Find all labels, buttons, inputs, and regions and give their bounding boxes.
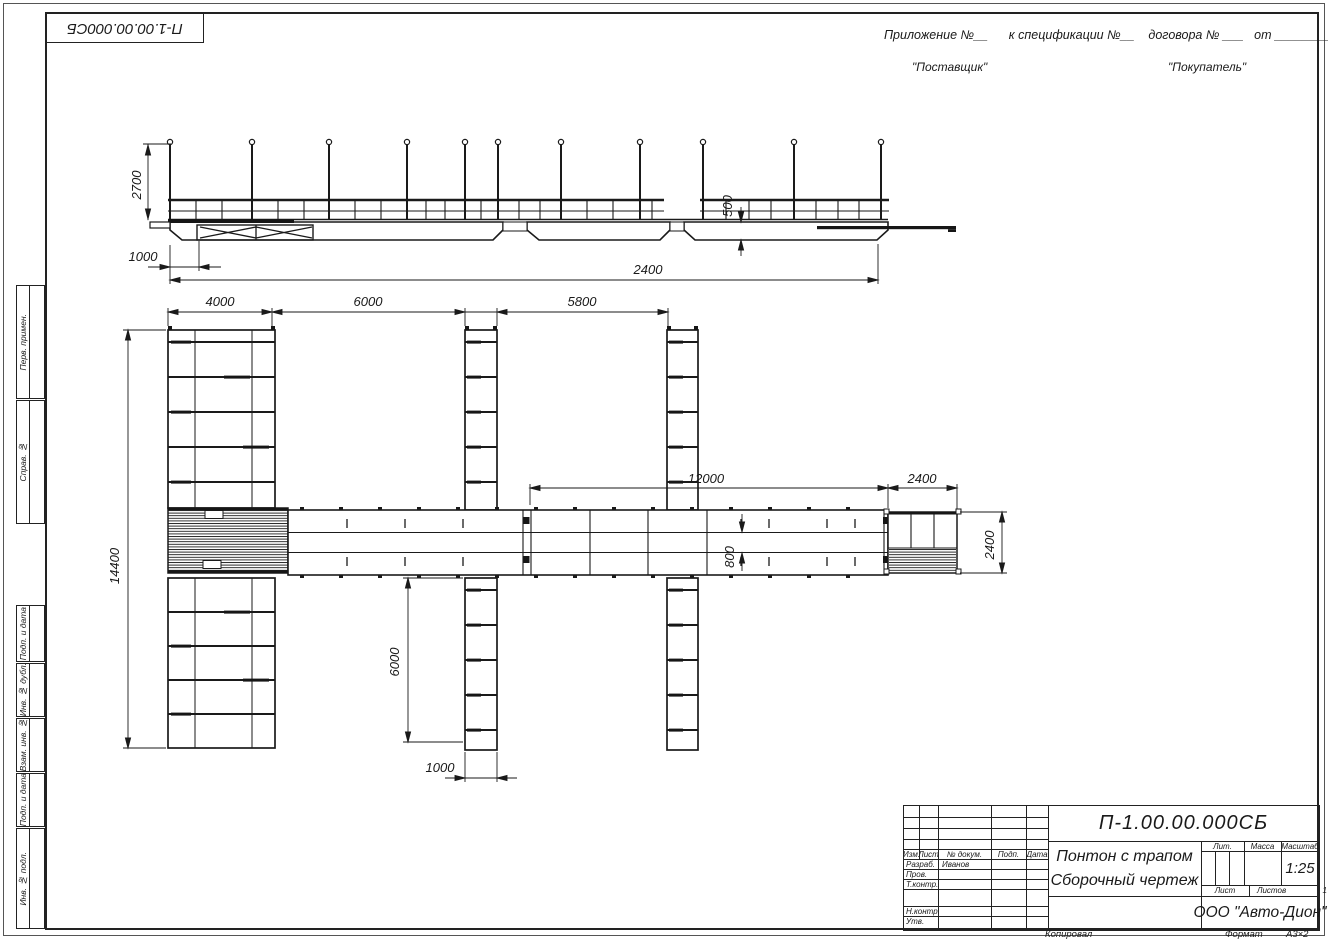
doc-number-inverted: П-1.00.00.000СБ: [67, 20, 183, 37]
tb-title-line1: Понтон с трапом: [1056, 845, 1192, 868]
walkway: [288, 509, 888, 577]
footer-kopiroval: Копировал: [1045, 929, 1092, 939]
tb-sheet-label: Лист: [1201, 885, 1249, 896]
margin-label-podp1: Подп. и дата: [18, 607, 28, 660]
dim-side-depth: 500: [720, 194, 735, 216]
tb-sheets-label: Листов: [1257, 886, 1286, 895]
tb-row-tkontr: Т.контр.: [904, 879, 940, 889]
tb-title-line2: Сборочный чертеж: [1051, 869, 1199, 892]
margin-box-podp2: Подп. и дата: [16, 773, 45, 827]
tb-row-prov: Пров.: [904, 869, 940, 879]
margin-label-inv-dubl: Инв. № дубл.: [18, 663, 28, 716]
title-block: Изм. Лист № докум. Подп. Дата Разраб. Ив…: [903, 805, 1320, 931]
margin-box-inv-podl: Инв. № подл.: [16, 828, 45, 929]
margin-box-sprav: Справ. №: [16, 400, 45, 524]
dim-plan-walkway: 12000: [688, 471, 725, 486]
margin-label-perv: Перв. примен.: [18, 314, 28, 371]
tb-sheets-cell: Листов 1: [1249, 885, 1328, 896]
dim-plan-pier-width: 4000: [206, 294, 236, 309]
dim-plan-finger-len: 6000: [387, 647, 402, 677]
margin-label-inv-podl: Инв. № подл.: [18, 852, 28, 906]
margin-box-vzam: Взам. инв. №: [16, 718, 45, 772]
footer-format-value: А3×2: [1286, 929, 1308, 939]
dim-plan-ramp-len: 2400: [907, 471, 938, 486]
drawing-canvas: 2700 1000 2400 500: [0, 0, 1328, 939]
tb-row-utv: Утв.: [904, 916, 940, 926]
tb-col-list: Лист: [919, 849, 938, 859]
tb-row-nkontr: Н.контр.: [904, 906, 940, 916]
dim-plan-ramp-w: 2400: [982, 530, 997, 561]
dim-side-overall: 2400: [633, 262, 664, 277]
side-view-dimensions: [143, 144, 878, 284]
margin-box-inv-dubl: Инв. № дубл.: [16, 663, 45, 717]
supplier-label: "Поставщик": [912, 60, 987, 74]
tb-mass-label: Масса: [1244, 841, 1281, 851]
tb-doc-number: П-1.00.00.000СБ: [1048, 806, 1319, 841]
doc-number-inverted-box: П-1.00.00.000СБ: [46, 13, 204, 43]
tb-col-doc: № докум.: [938, 849, 991, 859]
shore-ramp-hatch: [168, 508, 288, 573]
tb-col-izm: Изм.: [904, 849, 919, 859]
tb-col-podp: Подп.: [991, 849, 1026, 859]
tb-row-razrab: Разраб.: [904, 859, 940, 869]
end-ramp: [884, 509, 961, 574]
tb-lit-label: Лит.: [1201, 841, 1244, 851]
drawing-sheet: 2700 1000 2400 500: [0, 0, 1328, 939]
margin-box-podp1: Подп. и дата: [16, 605, 45, 662]
tb-title: Понтон с трапом Сборочный чертеж: [1048, 841, 1201, 896]
tb-sheets-value: 1: [1323, 886, 1327, 895]
dim-side-offset: 1000: [129, 249, 159, 264]
tb-company: ООО "Авто-Дион": [1201, 896, 1319, 930]
margin-label-vzam: Взам. инв. №: [18, 718, 28, 771]
plan-view: [168, 326, 961, 750]
margin-label-sprav: Справ. №: [18, 442, 28, 481]
dim-plan-finger-w: 1000: [426, 760, 456, 775]
dim-plan-bay2: 5800: [568, 294, 598, 309]
footer-format-label: Формат: [1225, 929, 1263, 939]
tb-razrab-name: Иванов: [940, 859, 993, 869]
margin-box-perv: Перв. примен.: [16, 285, 45, 399]
appendix-line: Приложение №__ к спецификации №__ догово…: [884, 28, 1328, 42]
tb-col-data: Дата: [1026, 849, 1048, 859]
tb-scale-label: Масштаб: [1281, 841, 1319, 851]
margin-label-podp2: Подп. и дата: [18, 773, 28, 826]
side-view: [150, 139, 956, 240]
dim-plan-total: 14400: [107, 547, 122, 584]
buyer-label: "Покупатель": [1168, 60, 1246, 74]
dim-plan-channel: 800: [722, 545, 737, 567]
dim-plan-bay1: 6000: [354, 294, 384, 309]
dim-side-height: 2700: [129, 170, 144, 201]
tb-scale-value: 1:25: [1281, 851, 1319, 885]
